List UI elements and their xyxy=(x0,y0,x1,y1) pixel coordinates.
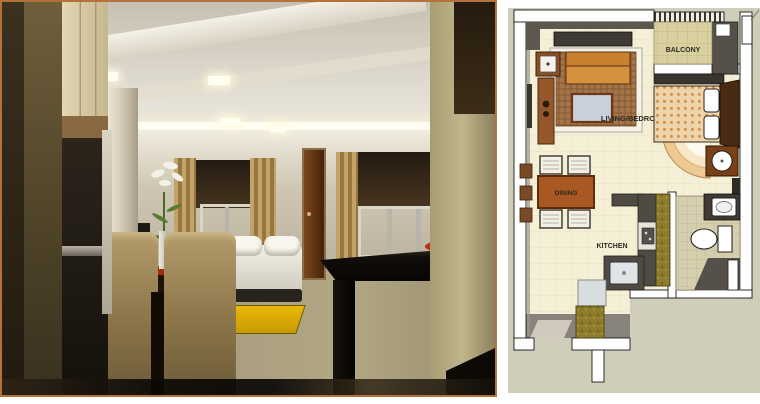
recessed-light xyxy=(220,118,240,126)
tall-cabinet xyxy=(538,78,554,144)
speaker xyxy=(543,101,549,107)
speaker xyxy=(543,111,548,116)
sliding-door xyxy=(654,74,724,84)
wall-right xyxy=(740,12,752,298)
sofa-back xyxy=(566,52,630,66)
balcony-floor xyxy=(654,22,712,64)
wall-stub xyxy=(742,16,752,44)
wall-bottom-a xyxy=(514,338,534,350)
burner xyxy=(649,238,652,241)
left-wall-panel xyxy=(24,2,62,397)
foreground-glossy-strip xyxy=(2,379,495,397)
sink-basin xyxy=(716,202,732,213)
bathroom-door xyxy=(728,260,738,290)
wall-left xyxy=(514,10,526,350)
dining-label: DINING xyxy=(555,190,578,197)
pillow xyxy=(704,89,719,112)
wall-shelf xyxy=(520,208,532,222)
kitchen-label: KITCHEN xyxy=(596,243,627,250)
upper-cabinet xyxy=(62,2,108,122)
floor-plan: BALCONY LIVING/BEDROOM xyxy=(508,8,760,393)
recessed-light xyxy=(208,76,230,85)
lamp-dot xyxy=(721,160,724,163)
balcony-corner xyxy=(716,24,730,36)
toilet-tank xyxy=(718,226,732,252)
corner-counter xyxy=(578,280,606,306)
kitchen-fridge xyxy=(576,306,604,338)
wall-bath-bottom xyxy=(630,290,752,298)
bathroom xyxy=(676,194,740,290)
dining-chair xyxy=(164,232,236,397)
balcony-label: BALCONY xyxy=(666,47,701,54)
left-wall-edge xyxy=(2,2,24,397)
granite-counter xyxy=(656,194,670,286)
wall-top xyxy=(514,10,654,22)
balcony-railing xyxy=(654,12,724,22)
headboard xyxy=(720,80,739,148)
curtain xyxy=(336,152,358,270)
wall-switch xyxy=(138,223,150,232)
lily-flower xyxy=(159,180,171,186)
pillow xyxy=(704,116,719,139)
door-knob xyxy=(307,212,311,216)
end-table-dot xyxy=(546,62,549,65)
yellow-rug xyxy=(224,305,305,334)
sofa-seat xyxy=(566,66,630,84)
interior-render-photo xyxy=(0,0,497,397)
stove xyxy=(642,228,654,244)
toilet-bowl xyxy=(691,229,717,249)
bar-counter-leg xyxy=(333,280,355,395)
wall-art xyxy=(527,84,532,128)
condo-collage: BALCONY LIVING/BEDROOM xyxy=(0,0,760,404)
dining-area: DINING xyxy=(520,156,594,228)
burner xyxy=(645,232,648,235)
sink-drain xyxy=(622,271,626,275)
wall-bottom-b xyxy=(572,338,630,350)
sofa-base-shadow xyxy=(226,289,302,302)
wall-shelf xyxy=(520,164,532,178)
recessed-light xyxy=(270,125,286,132)
sofa-cushion xyxy=(264,236,300,256)
column-dark-top xyxy=(454,2,495,114)
entry-door-leaf xyxy=(592,350,604,382)
doorway-light-edge xyxy=(102,130,112,314)
tv-console xyxy=(554,32,632,46)
wall-shelf xyxy=(520,186,532,200)
